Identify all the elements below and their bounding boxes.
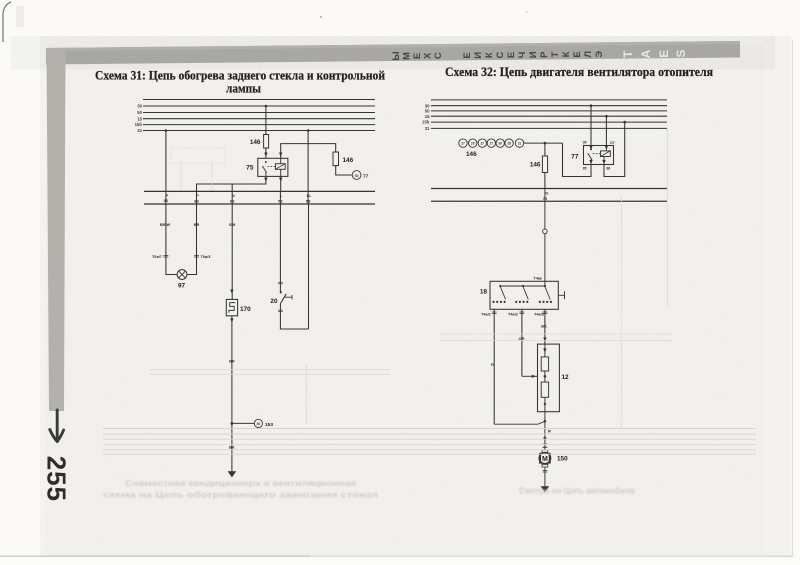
- svg-text:BR: BR: [229, 359, 235, 364]
- svg-text:R: R: [491, 362, 494, 367]
- svg-text:30: 30: [583, 141, 587, 145]
- svg-text:BR/W: BR/W: [160, 222, 171, 227]
- svg-text:50: 50: [425, 109, 430, 114]
- svg-text:Т: Т: [621, 50, 635, 58]
- svg-text:Ы: Ы: [391, 51, 402, 60]
- svg-text:31: 31: [137, 128, 142, 133]
- svg-text:85: 85: [583, 166, 587, 170]
- svg-text:73: 73: [543, 196, 548, 201]
- svg-text:97: 97: [178, 283, 186, 290]
- svg-text:30: 30: [257, 422, 261, 426]
- svg-text:С: С: [433, 52, 444, 59]
- svg-text:Т4ак: Т4ак: [533, 276, 542, 281]
- svg-text:15: 15: [425, 114, 430, 119]
- svg-text:31: 31: [425, 126, 430, 131]
- svg-text:D7: D7: [610, 141, 614, 145]
- svg-text:схема на Цепь обогревающего за: схема на Цепь обогревающего зажигания ст…: [103, 491, 378, 500]
- svg-text:12: 12: [562, 374, 570, 381]
- svg-text:И: И: [473, 52, 484, 59]
- svg-text:Е: Е: [657, 50, 671, 58]
- svg-text:Р: Р: [539, 51, 550, 58]
- svg-text:170: 170: [240, 306, 251, 313]
- svg-text:77: 77: [363, 174, 369, 180]
- svg-text:BK: BK: [229, 445, 235, 450]
- svg-text:153: 153: [265, 422, 273, 428]
- svg-text:Совместная кондиционера и вент: Совместная кондиционера и вентиляционная: [125, 479, 356, 488]
- svg-text:5: 5: [41, 486, 71, 500]
- svg-text:86: 86: [607, 166, 611, 170]
- svg-text:50: 50: [137, 110, 142, 115]
- svg-text:Т4а/3: Т4а/3: [534, 311, 545, 316]
- svg-text:146: 146: [343, 157, 354, 164]
- svg-text:18: 18: [480, 289, 488, 296]
- svg-text:лампы: лампы: [226, 82, 261, 96]
- svg-text:Е: Е: [572, 51, 583, 57]
- svg-text:BR: BR: [194, 222, 200, 227]
- svg-text:5: 5: [41, 471, 71, 485]
- svg-text:15b: 15b: [422, 120, 430, 125]
- svg-text:И: И: [528, 51, 539, 58]
- svg-text:27: 27: [481, 142, 485, 146]
- svg-text:30: 30: [137, 104, 142, 109]
- svg-text:26: 26: [471, 142, 475, 146]
- svg-text:20: 20: [270, 298, 278, 305]
- svg-text:Схема 31: Цепь обогрева заднег: Схема 31: Цепь обогрева заднего стекла и…: [95, 69, 385, 83]
- svg-text:146: 146: [530, 162, 541, 169]
- svg-text:2: 2: [41, 456, 71, 470]
- svg-text:SW: SW: [229, 222, 236, 227]
- svg-text:Ч: Ч: [517, 51, 528, 58]
- svg-text:К: К: [484, 52, 495, 58]
- svg-text:146: 146: [466, 151, 477, 158]
- svg-text:Е: Е: [506, 52, 517, 58]
- svg-text:52: 52: [355, 174, 359, 178]
- svg-text:77: 77: [571, 154, 579, 161]
- svg-text:Л: Л: [583, 51, 594, 58]
- svg-text:М: М: [402, 52, 413, 60]
- svg-text:К: К: [561, 51, 572, 57]
- svg-text:T6a/3: T6a/3: [201, 254, 212, 259]
- svg-text:T6a/7: T6a/7: [152, 254, 162, 259]
- svg-text:31: 31: [518, 142, 522, 146]
- svg-text:S: S: [674, 50, 688, 58]
- svg-text:LL: LL: [307, 193, 312, 198]
- svg-text:Э: Э: [594, 51, 605, 58]
- svg-text:15b: 15b: [135, 122, 143, 127]
- svg-text:Е: Е: [462, 52, 473, 58]
- svg-text:BK: BK: [541, 324, 547, 329]
- svg-text:O: O: [545, 191, 548, 196]
- svg-text:Е: Е: [412, 53, 423, 59]
- svg-text:15: 15: [137, 116, 142, 121]
- svg-text:146: 146: [250, 139, 261, 146]
- svg-text:Т4а/2: Т4а/2: [508, 311, 519, 316]
- svg-text:150: 150: [557, 456, 568, 463]
- svg-text:Т4а/1: Т4а/1: [481, 311, 492, 316]
- svg-text:R: R: [548, 429, 551, 434]
- svg-text:27: 27: [490, 142, 494, 146]
- svg-text:Схема 32: Цепь двигателя венти: Схема 32: Цепь двигателя вентилятора ото…: [445, 65, 713, 79]
- svg-text:Смотри по Цепь автомобиля: Смотри по Цепь автомобиля: [519, 487, 635, 496]
- svg-text:M: M: [542, 456, 548, 463]
- svg-text:А: А: [639, 49, 653, 58]
- svg-text:С: С: [495, 52, 506, 59]
- svg-text:30: 30: [498, 142, 502, 146]
- svg-text:Т: Т: [550, 52, 561, 58]
- svg-text:Х: Х: [423, 52, 434, 59]
- svg-text:75: 75: [246, 165, 254, 172]
- svg-text:26: 26: [507, 142, 511, 146]
- svg-text:27: 27: [461, 142, 465, 146]
